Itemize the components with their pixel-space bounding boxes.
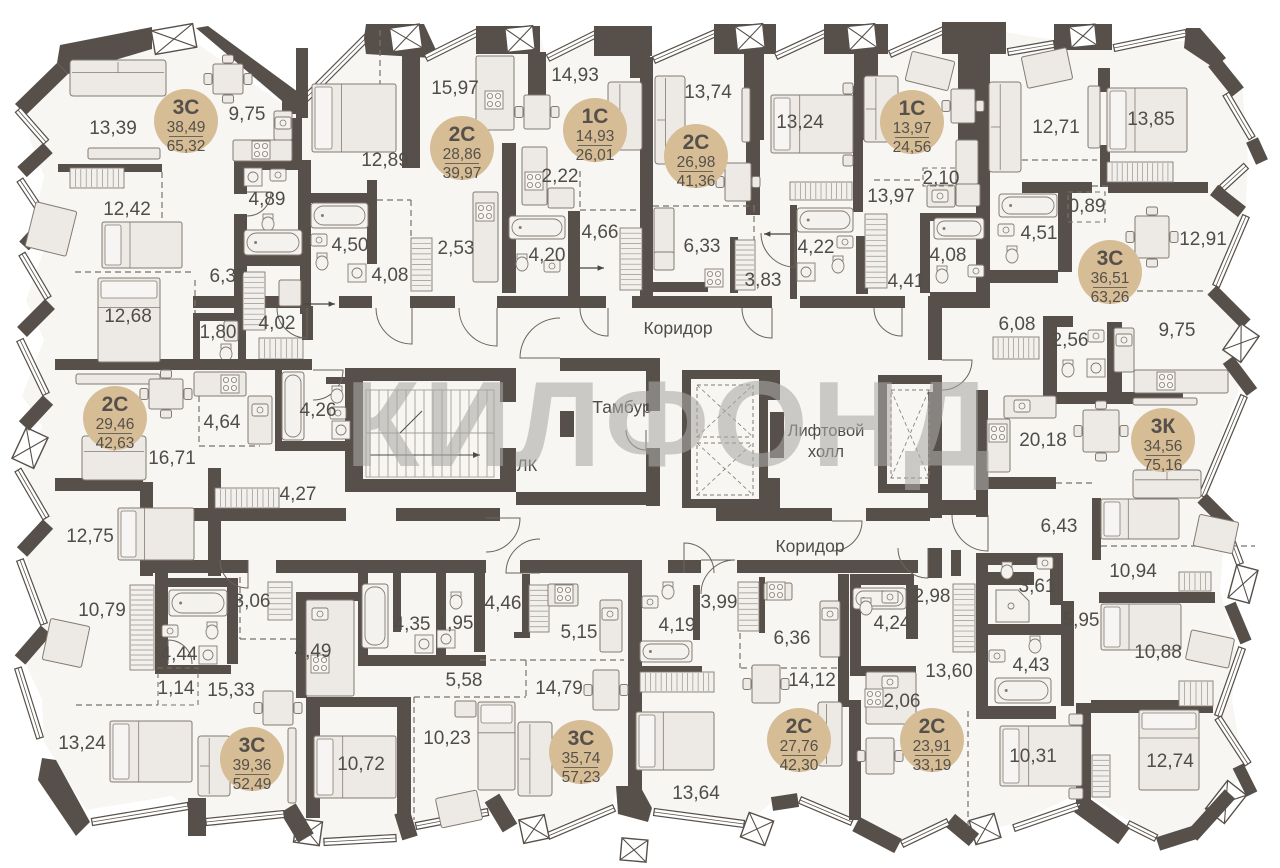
svg-text:2,53: 2,53 [438,238,475,259]
svg-text:12,91: 12,91 [1179,229,1227,250]
svg-text:10,88: 10,88 [1134,642,1182,663]
svg-text:0,89: 0,89 [1069,196,1106,217]
svg-text:5,15: 5,15 [561,622,598,643]
svg-text:1С: 1С [899,97,926,120]
svg-text:13,97: 13,97 [893,120,932,137]
svg-text:12,74: 12,74 [1146,751,1194,772]
svg-text:63,26: 63,26 [1091,289,1130,306]
svg-text:26,98: 26,98 [677,154,716,171]
svg-text:2,98: 2,98 [914,586,951,607]
svg-text:2С: 2С [449,123,476,146]
svg-text:Коридор: Коридор [775,536,844,556]
svg-text:2С: 2С [102,393,129,416]
svg-text:6,08: 6,08 [999,314,1036,335]
svg-text:13,97: 13,97 [867,186,915,207]
svg-text:13,85: 13,85 [1127,109,1175,130]
svg-text:2С: 2С [919,715,946,738]
svg-text:4,41: 4,41 [888,271,925,292]
svg-text:57,23: 57,23 [562,769,601,786]
svg-text:2С: 2С [683,131,710,154]
svg-text:1,95: 1,95 [437,613,474,634]
svg-text:13,24: 13,24 [58,733,106,754]
svg-text:10,23: 10,23 [423,728,471,749]
svg-text:6,43: 6,43 [1041,516,1078,537]
svg-text:13,64: 13,64 [672,783,720,804]
svg-text:10,79: 10,79 [78,600,126,621]
svg-text:42,63: 42,63 [96,435,135,452]
svg-text:4,51: 4,51 [1021,223,1058,244]
svg-text:65,32: 65,32 [167,138,206,155]
svg-text:42,30: 42,30 [780,757,819,774]
svg-text:13,39: 13,39 [89,118,137,139]
svg-text:4,24: 4,24 [874,613,911,634]
svg-text:5,95: 5,95 [1063,610,1100,631]
svg-text:1,80: 1,80 [200,322,237,343]
svg-text:14,79: 14,79 [535,678,583,699]
svg-text:33,19: 33,19 [913,757,952,774]
svg-text:12,71: 12,71 [1032,117,1080,138]
svg-text:39,36: 39,36 [233,757,272,774]
svg-text:4,20: 4,20 [529,245,566,266]
svg-text:6,37: 6,37 [210,266,247,287]
svg-text:13,24: 13,24 [776,112,824,133]
svg-text:3,83: 3,83 [745,270,782,291]
svg-text:14,93: 14,93 [576,128,615,145]
svg-text:28,86: 28,86 [443,146,482,163]
svg-text:4,64: 4,64 [204,412,241,433]
svg-text:2С: 2С [786,715,813,738]
svg-text:34,56: 34,56 [1144,438,1183,455]
svg-text:16,71: 16,71 [148,448,196,469]
svg-text:5,58: 5,58 [446,670,483,691]
svg-text:12,89: 12,89 [361,150,409,171]
svg-text:3,06: 3,06 [234,591,271,612]
svg-text:4,50: 4,50 [332,235,369,256]
svg-text:26,01: 26,01 [576,147,615,164]
svg-text:КИЛФОНД: КИЛФОНД [345,356,995,492]
svg-text:75,16: 75,16 [1144,457,1183,474]
svg-text:3,99: 3,99 [701,592,738,613]
svg-text:23,91: 23,91 [913,738,952,755]
svg-text:9,75: 9,75 [229,104,266,125]
svg-text:41,36: 41,36 [677,173,716,190]
svg-text:4,26: 4,26 [300,400,337,421]
svg-text:13,74: 13,74 [684,82,732,103]
svg-text:4,66: 4,66 [582,222,619,243]
svg-text:39,97: 39,97 [443,165,482,182]
svg-text:3С: 3С [568,727,595,750]
svg-text:4,46: 4,46 [485,593,522,614]
svg-text:12,75: 12,75 [66,526,114,547]
svg-text:4,43: 4,43 [1013,655,1050,676]
svg-text:24,56: 24,56 [893,139,932,156]
svg-text:35,74: 35,74 [562,750,601,767]
svg-text:38,49: 38,49 [167,119,206,136]
svg-text:3С: 3С [1097,247,1124,270]
svg-text:9,75: 9,75 [1159,320,1196,341]
svg-text:29,46: 29,46 [96,416,135,433]
svg-text:36,51: 36,51 [1091,270,1130,287]
svg-text:4,08: 4,08 [372,265,409,286]
svg-text:4,08: 4,08 [930,245,967,266]
svg-text:4,27: 4,27 [280,484,317,505]
svg-text:2,10: 2,10 [923,168,960,189]
svg-text:6,36: 6,36 [774,628,811,649]
svg-text:6,33: 6,33 [684,236,721,257]
svg-text:15,33: 15,33 [207,680,255,701]
svg-text:1С: 1С [582,105,609,128]
svg-text:4,22: 4,22 [798,237,835,258]
svg-text:4,89: 4,89 [249,189,286,210]
svg-text:13,60: 13,60 [925,661,973,682]
svg-text:3,61: 3,61 [1019,576,1056,597]
svg-text:10,31: 10,31 [1009,746,1057,767]
svg-text:15,97: 15,97 [431,78,479,99]
svg-text:20,18: 20,18 [1019,430,1067,451]
svg-text:2,06: 2,06 [884,691,921,712]
svg-text:3С: 3С [173,96,200,119]
svg-text:10,72: 10,72 [337,754,385,775]
svg-text:4,19: 4,19 [659,615,696,636]
svg-text:27,76: 27,76 [780,738,819,755]
svg-text:2,56: 2,56 [1052,330,1089,351]
svg-text:52,49: 52,49 [233,776,272,793]
svg-text:14,93: 14,93 [551,65,599,86]
svg-text:4,35: 4,35 [394,614,431,635]
svg-text:4,49: 4,49 [295,641,332,662]
svg-text:1,14: 1,14 [158,678,195,699]
svg-text:3К: 3К [1151,415,1176,438]
svg-text:12,68: 12,68 [104,306,152,327]
svg-text:10,94: 10,94 [1109,561,1157,582]
svg-text:4,02: 4,02 [259,313,296,334]
svg-text:4,44: 4,44 [161,644,198,665]
svg-text:3С: 3С [239,734,266,757]
svg-text:2,22: 2,22 [542,166,579,187]
svg-text:12,42: 12,42 [103,199,151,220]
svg-text:Коридор: Коридор [643,318,712,338]
svg-text:14,12: 14,12 [788,670,836,691]
